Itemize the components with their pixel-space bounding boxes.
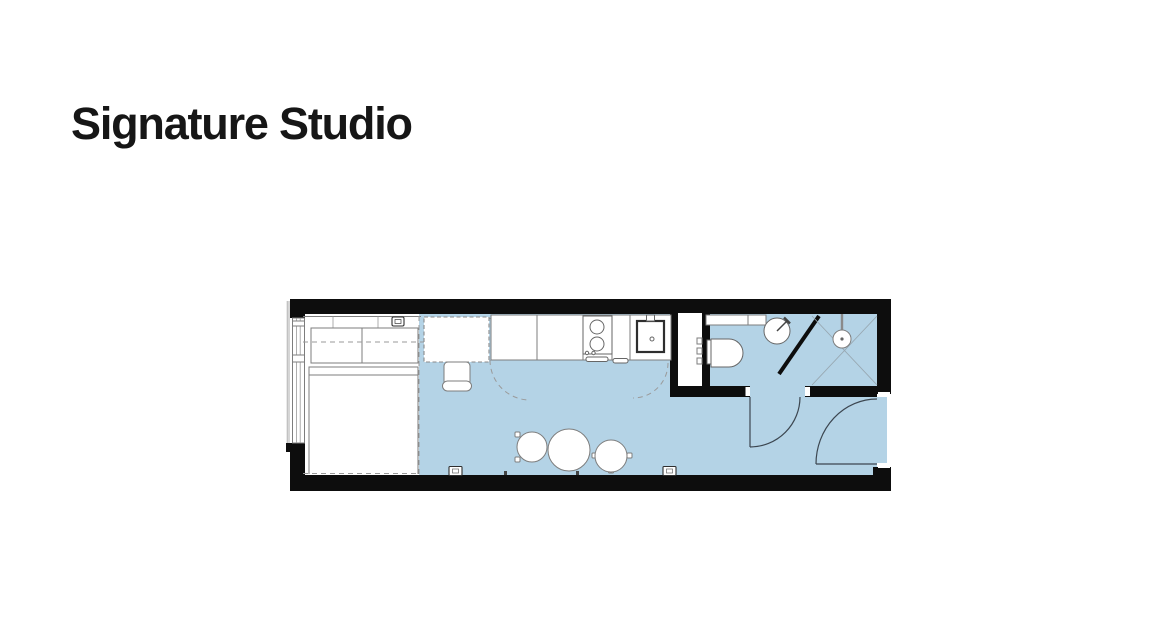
mattress — [309, 367, 418, 474]
stool-left — [517, 432, 547, 462]
bottom-wall — [290, 475, 891, 491]
left-wall-upper — [290, 299, 305, 318]
appliance-handle — [613, 359, 628, 364]
desk — [424, 317, 489, 362]
hob-knob — [585, 351, 588, 354]
hob-knob — [592, 351, 595, 354]
jamb-cap — [878, 392, 890, 397]
jamb-cap — [878, 463, 890, 468]
window-mullion — [293, 321, 305, 326]
page-title: Signature Studio — [71, 98, 412, 150]
power-socket — [663, 467, 676, 476]
toilet-bowl — [711, 339, 743, 367]
floor-plan — [286, 297, 896, 493]
window-mullion — [293, 355, 305, 362]
window-frame — [293, 318, 305, 443]
wardrobe-hinge — [697, 338, 702, 344]
kitchen-sink — [637, 321, 664, 352]
wall-tick — [504, 471, 507, 475]
entry-doorway-floor — [877, 397, 887, 463]
stool-right — [595, 440, 627, 472]
jamb-cap — [805, 387, 810, 396]
stool-foot — [515, 432, 520, 437]
right-wall-upper — [877, 299, 891, 394]
hob-burner — [590, 320, 604, 334]
floor-plan-drawing — [286, 297, 896, 493]
pillow-block — [311, 328, 418, 363]
bedside-switch — [392, 317, 404, 326]
left-wall-exterior-block — [286, 443, 293, 452]
power-socket — [449, 467, 462, 476]
sink-drain — [650, 337, 654, 341]
wardrobe — [678, 313, 702, 386]
wardrobe-hinge — [697, 348, 702, 354]
sink-tap — [647, 315, 655, 321]
bathroom-bottom-wall-left — [670, 386, 750, 397]
double-bed — [303, 317, 421, 475]
top-wall — [290, 299, 891, 314]
dining-table — [548, 429, 590, 471]
desk-chair-back — [443, 381, 472, 391]
jamb-cap — [746, 387, 751, 396]
hob-burner — [590, 337, 604, 351]
oven-handle — [586, 357, 608, 362]
stool-foot — [627, 453, 632, 458]
bathroom-bottom-wall-right — [805, 386, 877, 397]
wall-tick — [576, 471, 579, 475]
stool-foot — [515, 457, 520, 462]
bathroom-shelf — [706, 315, 766, 325]
window — [287, 301, 304, 443]
shower-drain-center — [840, 337, 843, 340]
right-wall-corner — [873, 467, 891, 477]
wardrobe-hinge — [697, 358, 702, 364]
